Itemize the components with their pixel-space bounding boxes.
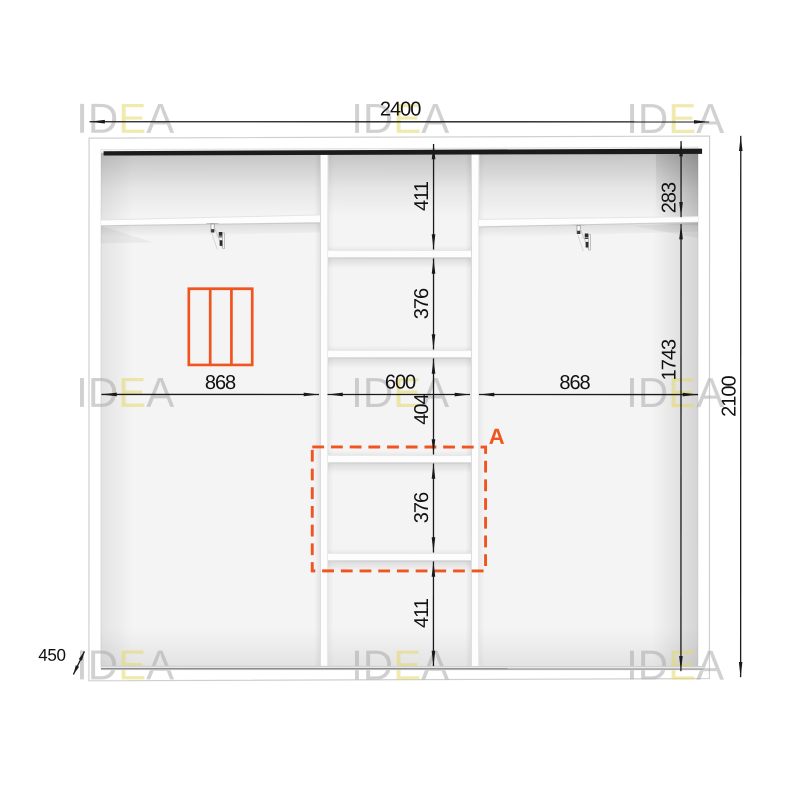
svg-text:376: 376: [411, 492, 433, 523]
svg-text:411: 411: [411, 598, 433, 628]
svg-text:IDEA: IDEA: [351, 641, 449, 688]
svg-text:IDEA: IDEA: [76, 95, 174, 142]
svg-text:IDEA: IDEA: [76, 369, 174, 416]
svg-text:IDEA: IDEA: [626, 95, 724, 142]
svg-text:2100: 2100: [718, 375, 740, 416]
svg-text:283: 283: [659, 182, 681, 213]
svg-text:IDEA: IDEA: [626, 642, 724, 689]
svg-text:411: 411: [411, 181, 433, 211]
svg-text:IDEA: IDEA: [76, 641, 174, 688]
svg-text:2400: 2400: [380, 98, 421, 120]
svg-text:1743: 1743: [659, 339, 681, 380]
svg-text:450: 450: [38, 646, 65, 665]
svg-text:868: 868: [205, 372, 236, 394]
svg-text:600: 600: [385, 371, 416, 393]
svg-text:376: 376: [411, 288, 433, 319]
svg-text:868: 868: [559, 372, 590, 394]
svg-text:404: 404: [411, 393, 433, 424]
svg-text:A: A: [489, 424, 505, 449]
